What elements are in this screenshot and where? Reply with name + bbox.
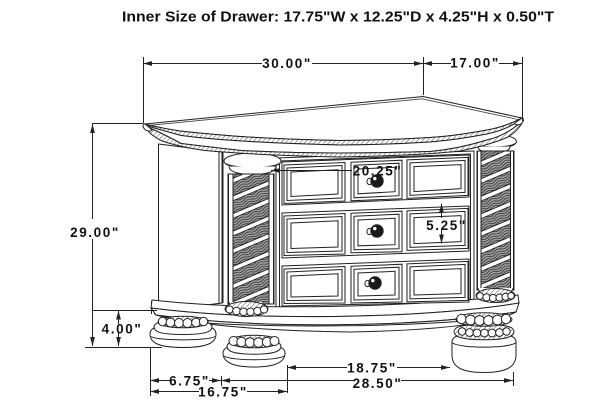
svg-text:16.75": 16.75"	[198, 385, 248, 400]
svg-text:29.00": 29.00"	[70, 225, 120, 240]
svg-text:4.00": 4.00"	[102, 322, 143, 337]
svg-text:18.75": 18.75"	[347, 361, 397, 376]
svg-text:28.50": 28.50"	[353, 376, 403, 391]
svg-text:Inner Size of Drawer: 17.75"W: Inner Size of Drawer: 17.75"W x 12.25"D …	[122, 9, 554, 26]
svg-text:30.00": 30.00"	[262, 56, 312, 71]
svg-text:20.25": 20.25"	[353, 164, 403, 179]
svg-text:5.25": 5.25"	[426, 218, 467, 233]
svg-text:17.00": 17.00"	[450, 56, 500, 71]
